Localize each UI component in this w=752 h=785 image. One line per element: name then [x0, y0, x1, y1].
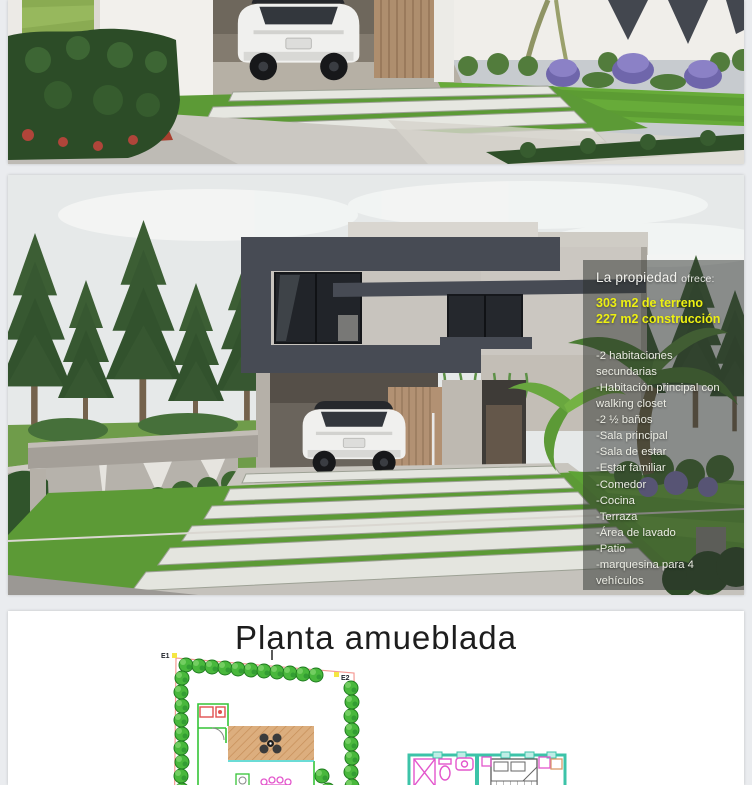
- construction-area: 227 m2 construcción: [596, 312, 736, 328]
- charcoal-top-band: [241, 237, 560, 271]
- feature-item: -Sala principal: [596, 428, 736, 444]
- label-e2: E2: [341, 675, 350, 682]
- feature-item: -Estar familiar: [596, 460, 736, 476]
- hedge-left: [8, 29, 180, 160]
- blanket: [491, 781, 537, 785]
- charcoal-bottom-band: [241, 345, 481, 373]
- info-heading-sub: ofrece:: [681, 273, 715, 285]
- wooden-front-door: [374, 0, 454, 82]
- dining-set: [261, 777, 297, 785]
- feature-item: -Patio: [596, 541, 736, 557]
- nightstand: [539, 757, 550, 768]
- label-e1: E1: [161, 653, 170, 660]
- feature-item: -marquesina para 4 vehículos: [596, 557, 736, 589]
- kitchen-fixtures: [200, 707, 225, 717]
- site-plan: E1 E2: [160, 648, 365, 785]
- bed: [491, 759, 537, 785]
- floorplan-card: Planta amueblada E1 E2: [8, 611, 744, 785]
- middle-photo-card: La propiedad ofrece: 303 m2 de terreno 2…: [8, 175, 744, 595]
- feature-list: -2 habitaciones secundarias -Habitación …: [596, 348, 736, 588]
- small-table: [236, 774, 249, 785]
- feature-item: -Área de lavado: [596, 525, 736, 541]
- boundary-marker: [334, 672, 339, 677]
- decorative-wall-right: [454, 0, 744, 60]
- terrain-area: 303 m2 de terreno: [596, 296, 736, 312]
- feature-item: -Comedor: [596, 477, 736, 493]
- feature-item: -2 ½ baños: [596, 412, 736, 428]
- area-facts: 303 m2 de terreno 227 m2 construcción: [596, 296, 736, 327]
- boundary-marker: [172, 653, 177, 658]
- feature-item: -Terraza: [596, 509, 736, 525]
- bedroom-plan: [405, 745, 570, 785]
- pillow: [511, 762, 525, 771]
- feature-item: -Cocina: [596, 493, 736, 509]
- plans-title: Planta amueblada: [8, 619, 744, 657]
- top-photo-card: [8, 0, 744, 164]
- feature-item: -Habitación principal con walking closet: [596, 380, 736, 412]
- property-info-panel: La propiedad ofrece: 303 m2 de terreno 2…: [583, 260, 744, 590]
- info-heading: La propiedad ofrece:: [596, 270, 736, 285]
- closet: [551, 759, 562, 769]
- site-plan-trees: [174, 658, 359, 785]
- feature-item: -2 habitaciones secundarias: [596, 348, 736, 380]
- partition-wall: [475, 755, 479, 785]
- bathroom-fixtures: [414, 758, 473, 785]
- door-handle: [432, 413, 435, 468]
- terrace: [228, 726, 314, 760]
- nightstand: [482, 757, 491, 766]
- feature-item: -Sala de estar: [596, 444, 736, 460]
- pillow: [494, 762, 508, 771]
- top-render-scene: [8, 0, 744, 164]
- right-window: [440, 295, 532, 349]
- info-heading-main: La propiedad: [596, 270, 677, 285]
